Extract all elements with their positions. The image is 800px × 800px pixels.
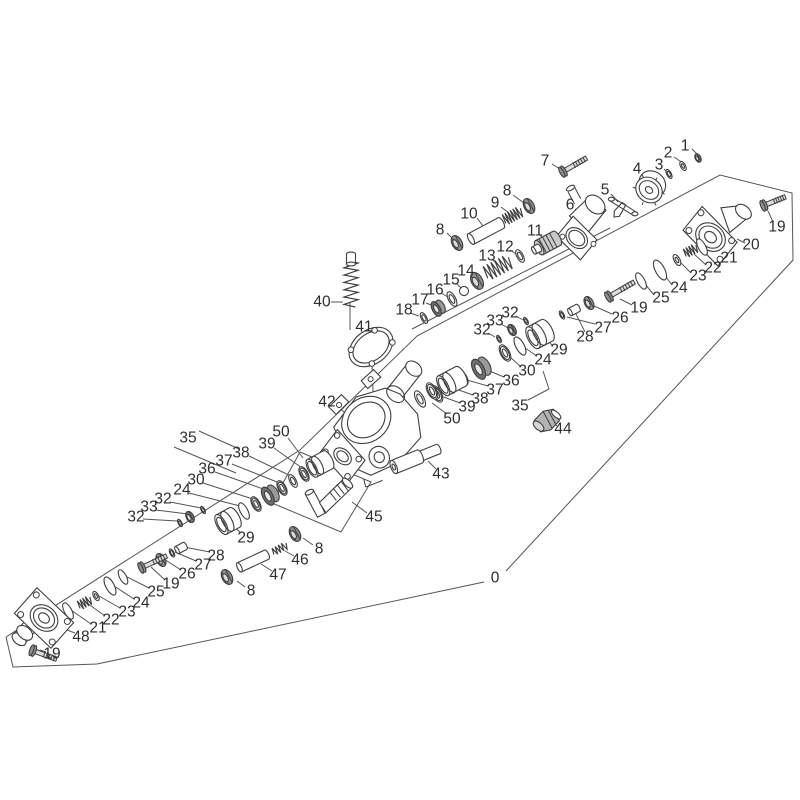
- part-number-label: 7: [541, 153, 550, 170]
- part-oring-24: [651, 258, 669, 282]
- part-nut-8: [449, 234, 465, 253]
- part-spring-40: [344, 261, 358, 307]
- part-washer-23: [672, 253, 683, 266]
- part-number-label: 24: [534, 352, 552, 369]
- part-number-label: 47: [269, 567, 286, 584]
- part-number-label: 5: [601, 182, 610, 199]
- part-nut-8: [521, 197, 537, 216]
- part-oring-32: [177, 519, 184, 528]
- part-spacer-28: [174, 542, 189, 555]
- leader-line: [441, 396, 460, 403]
- part-number-label: 29: [237, 530, 254, 547]
- part-number-label: 35: [511, 398, 528, 415]
- part-number-label: 22: [704, 260, 721, 277]
- part-number-label: 27: [594, 320, 611, 337]
- part-number-label: 29: [550, 342, 567, 359]
- part-number-label: 32: [127, 509, 144, 526]
- part-number-label: 6: [566, 197, 575, 214]
- part-oring-32: [496, 335, 503, 344]
- leader-line: [237, 581, 245, 587]
- part-oring-24: [512, 335, 529, 357]
- exploded-parts-diagram: 1234578961081119201213212214231524162517…: [0, 0, 800, 800]
- kit-outline-line: [543, 371, 549, 389]
- part-number-label: 16: [426, 282, 443, 299]
- leader-line: [156, 510, 188, 514]
- part-number-label: 39: [258, 436, 275, 453]
- part-number-label: 32: [501, 305, 518, 322]
- part-number-label: 15: [442, 272, 459, 289]
- part-number-label: 41: [355, 319, 372, 336]
- part-ring-30: [497, 343, 513, 363]
- part-washer-3: [665, 169, 674, 180]
- part-number-label: 4: [633, 161, 642, 178]
- part-number-label: 19: [162, 576, 179, 593]
- part-number-label: 39: [458, 399, 475, 416]
- part-number-label: 36: [502, 373, 519, 390]
- part-number-label: 28: [576, 329, 593, 346]
- part-spring-22: [76, 595, 93, 610]
- part-number-label: 26: [178, 566, 195, 583]
- diagram-canvas: 1234578961081119201213212214231524162517…: [0, 0, 800, 800]
- part-number-label: 9: [491, 195, 500, 212]
- part-nut-26: [582, 295, 596, 311]
- part-rod-47: [235, 549, 270, 573]
- part-number-label: 21: [720, 250, 737, 267]
- part-number-label: 3: [655, 157, 664, 174]
- leader-line: [170, 502, 201, 508]
- part-plug-33: [506, 323, 518, 337]
- part-spring-9: [501, 206, 524, 226]
- part-washer-23: [91, 590, 100, 601]
- kit-outline-line: [528, 389, 549, 400]
- part-number-label: 23: [118, 604, 135, 621]
- part-number-label: 25: [652, 290, 669, 307]
- part-plate-25: [633, 271, 648, 290]
- part-number-label: 37: [215, 453, 232, 470]
- part-bolt-19: [759, 191, 788, 211]
- part-seal-17: [429, 298, 448, 318]
- part-unloader-housing-6: [539, 174, 625, 264]
- part-number-label: 13: [478, 248, 495, 265]
- part-number-label: 26: [611, 310, 628, 327]
- part-number-label: 20: [742, 237, 760, 254]
- parts: [0, 153, 788, 665]
- part-ring-30: [249, 495, 264, 513]
- part-number-label: 24: [670, 280, 688, 297]
- part-number-label: 8: [436, 222, 445, 239]
- part-number-label: 19: [43, 646, 60, 663]
- part-nut-8: [287, 525, 303, 544]
- part-number-label: 45: [365, 509, 382, 526]
- part-seal-36: [469, 354, 495, 382]
- part-number-label: 0: [491, 570, 500, 587]
- part-oring-32: [523, 317, 530, 326]
- part-number-label: 27: [194, 557, 211, 574]
- part-number-label: 38: [232, 445, 249, 462]
- part-number-label: 11: [527, 223, 543, 240]
- part-number-label: 48: [72, 629, 89, 646]
- part-washer-2: [678, 160, 687, 171]
- part-number-label: 18: [395, 302, 412, 319]
- part-number-label: 1: [681, 138, 690, 155]
- part-number-label: 35: [179, 430, 196, 447]
- part-number-label: 2: [664, 145, 673, 162]
- part-number-label: 25: [147, 584, 164, 601]
- assembly-boundary-line: [6, 582, 484, 667]
- leader-line: [71, 610, 91, 624]
- leader-line: [203, 483, 256, 500]
- part-nut-8: [219, 568, 235, 587]
- part-number-label: 37: [486, 382, 503, 399]
- part-number-label: 8: [247, 583, 256, 600]
- part-number-label: 14: [457, 263, 475, 280]
- part-number-labels: 1234578961081119201213212214231524162517…: [43, 138, 785, 663]
- part-spring-retainer-40: [347, 252, 356, 266]
- part-oring-27: [558, 310, 566, 320]
- leader-line: [513, 195, 524, 203]
- leader-line: [477, 218, 483, 226]
- part-number-label: 23: [689, 268, 706, 285]
- part-oring-24: [102, 575, 119, 597]
- part-bolt-7: [557, 153, 589, 178]
- leader-line: [467, 380, 488, 386]
- part-number-label: 19: [630, 300, 647, 317]
- part-plug-33: [184, 510, 196, 524]
- part-number-label: 8: [315, 541, 324, 558]
- part-number-label: 50: [443, 411, 461, 428]
- part-number-label: 19: [768, 219, 785, 236]
- part-oring-18: [419, 311, 429, 324]
- leader-line: [288, 438, 303, 458]
- leader-line: [99, 596, 120, 608]
- leader-line: [189, 493, 244, 507]
- part-spacer-28: [567, 304, 582, 317]
- leader-line: [303, 538, 313, 545]
- part-number-label: 30: [518, 363, 536, 380]
- part-valve-46: [271, 541, 289, 556]
- part-number-label: 40: [313, 294, 331, 311]
- part-oring-12: [514, 248, 526, 263]
- part-number-label: 10: [460, 206, 478, 223]
- part-number-label: 12: [496, 239, 513, 256]
- part-number-label: 24: [173, 482, 191, 499]
- part-nut-1: [693, 153, 702, 164]
- part-number-label: 21: [89, 620, 106, 637]
- part-oring-38: [287, 473, 299, 488]
- part-oring-38: [412, 389, 428, 409]
- part-number-label: 17: [411, 292, 428, 309]
- leader-line: [143, 519, 177, 521]
- leader-line: [594, 306, 612, 314]
- part-ring-16: [445, 290, 459, 308]
- part-number-label: 46: [291, 552, 308, 569]
- leader-line: [127, 577, 149, 588]
- part-number-label: 32: [473, 322, 490, 339]
- part-number-label: 43: [432, 466, 449, 483]
- part-number-label: 44: [554, 421, 572, 438]
- part-number-label: 42: [318, 394, 335, 411]
- part-number-label: 8: [503, 183, 512, 200]
- leader-line: [114, 586, 134, 599]
